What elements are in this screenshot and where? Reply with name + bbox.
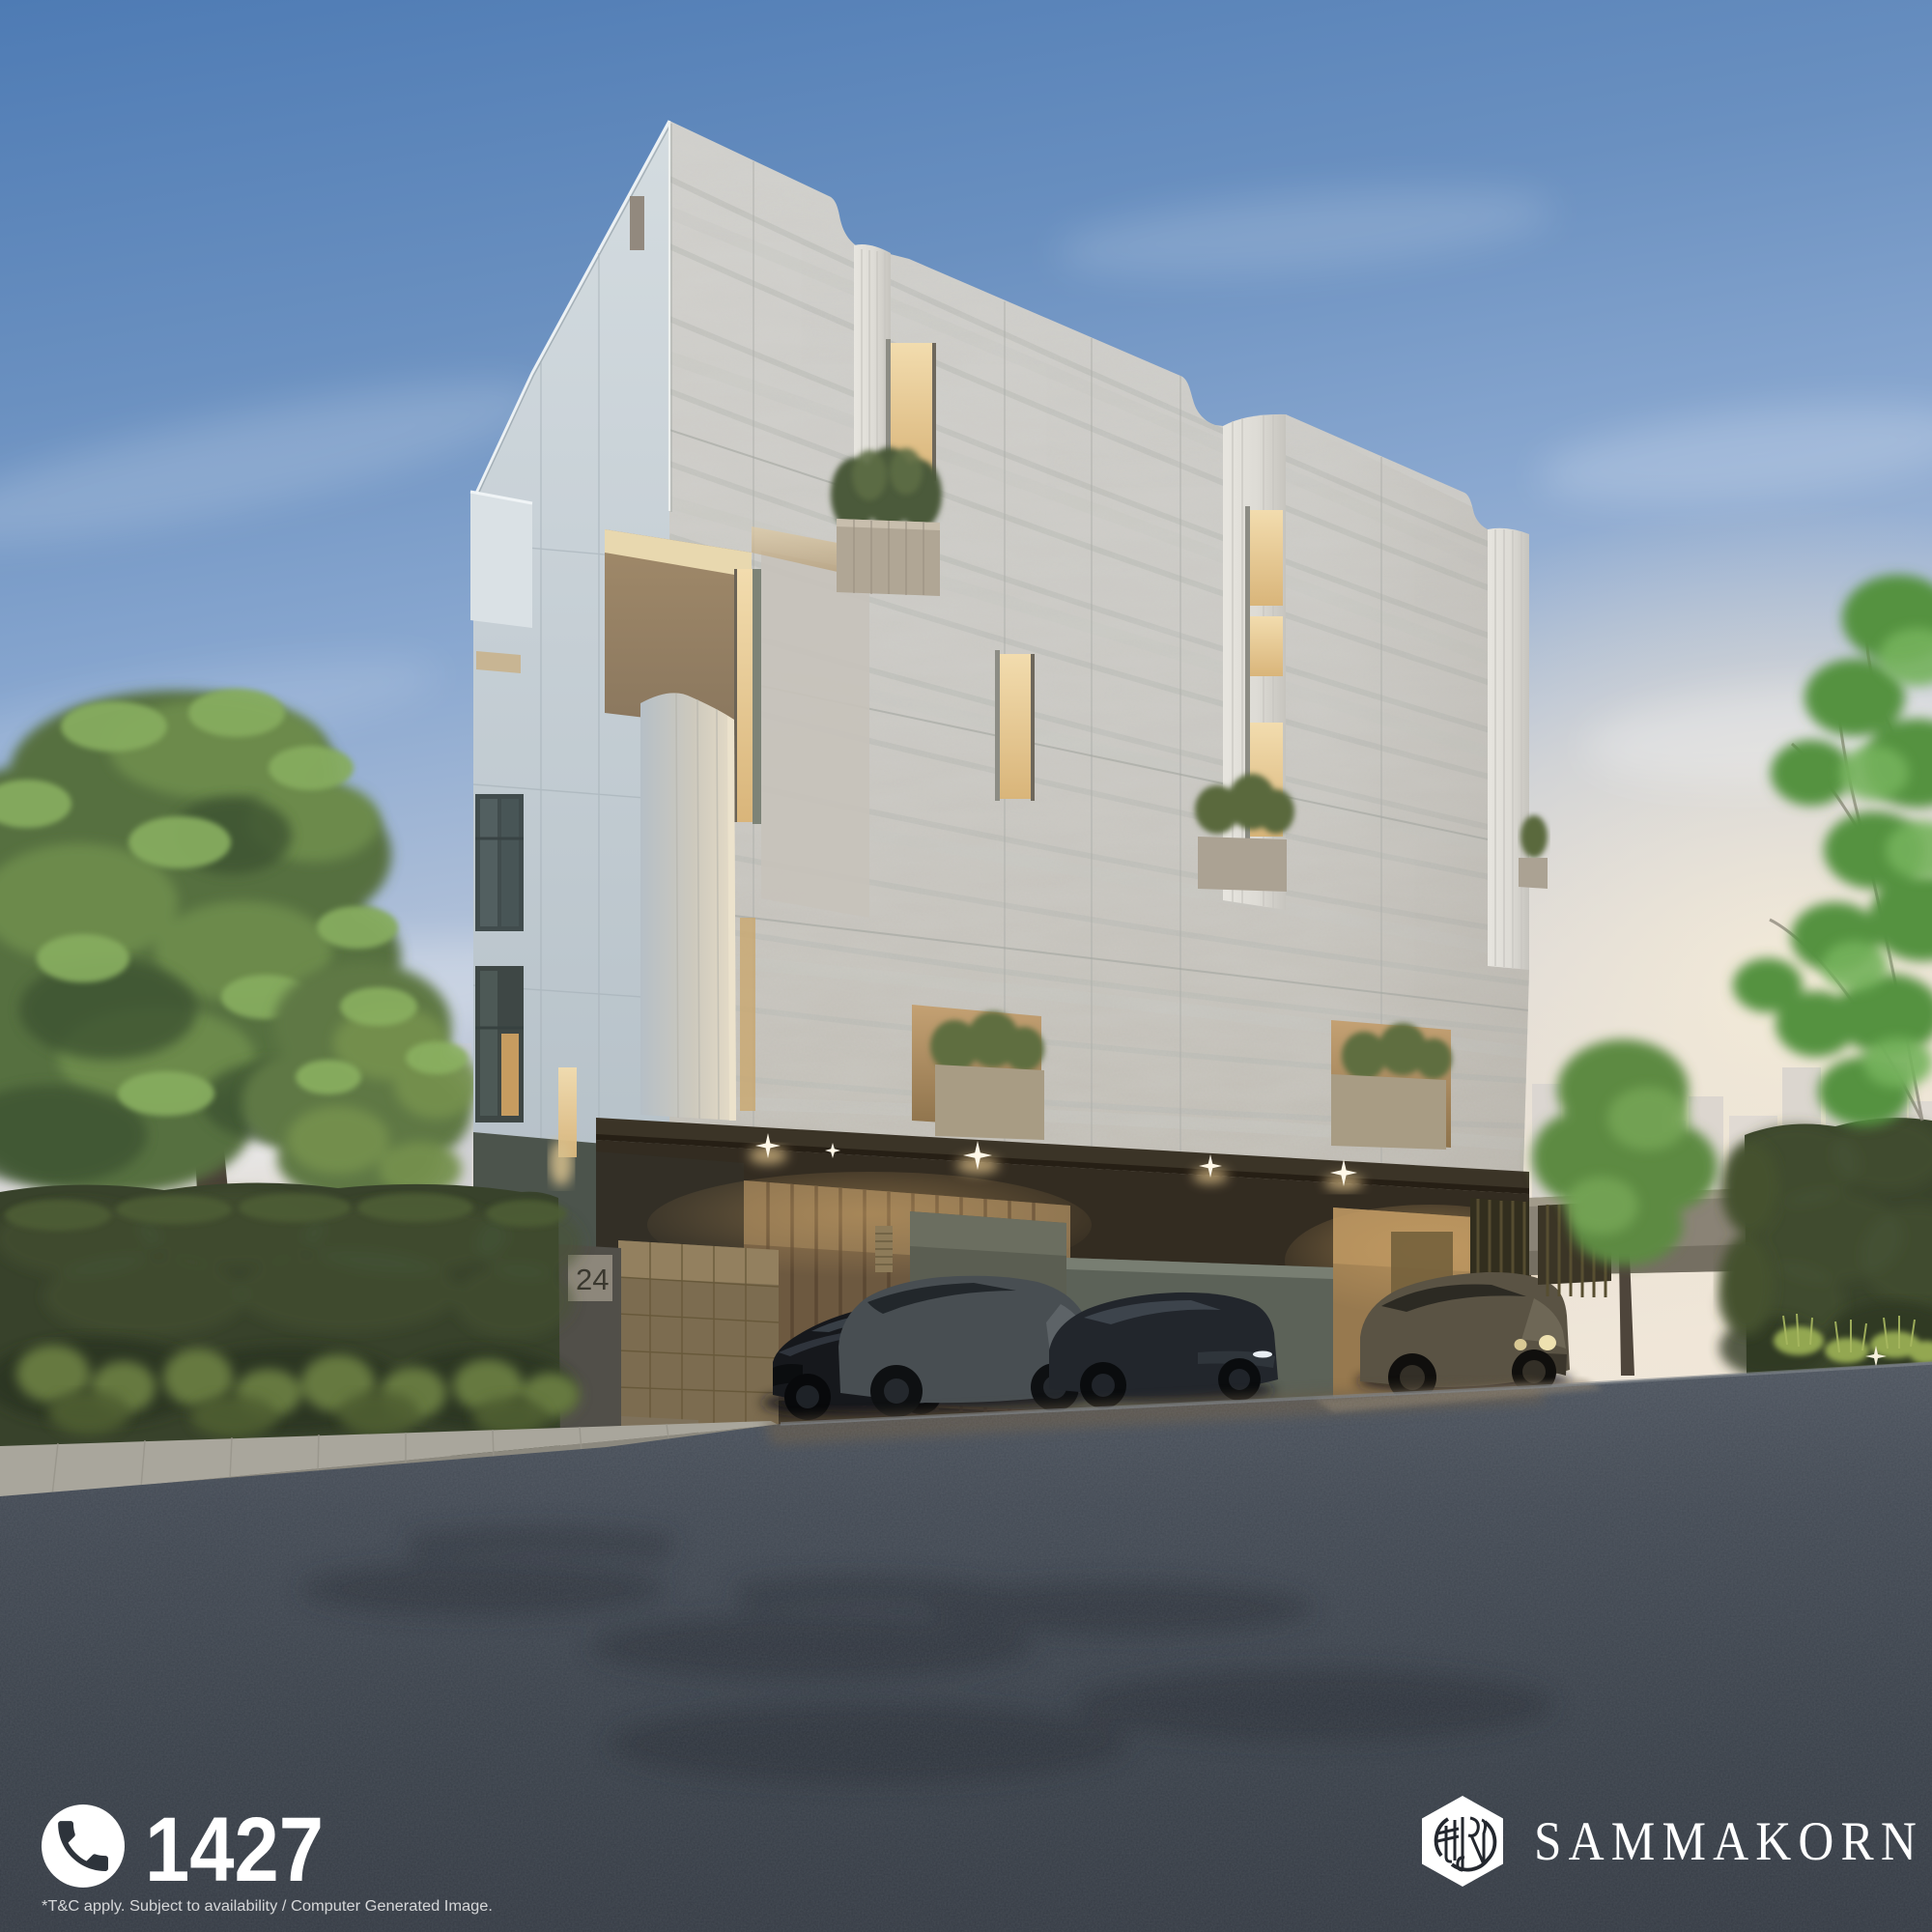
svg-text:1427: 1427 (145, 1799, 324, 1901)
svg-text:24: 24 (576, 1263, 609, 1296)
svg-text:SAMMAKORN: SAMMAKORN (1534, 1811, 1923, 1872)
svg-text:*T&C apply. Subject to availab: *T&C apply. Subject to availability / Co… (42, 1898, 493, 1915)
